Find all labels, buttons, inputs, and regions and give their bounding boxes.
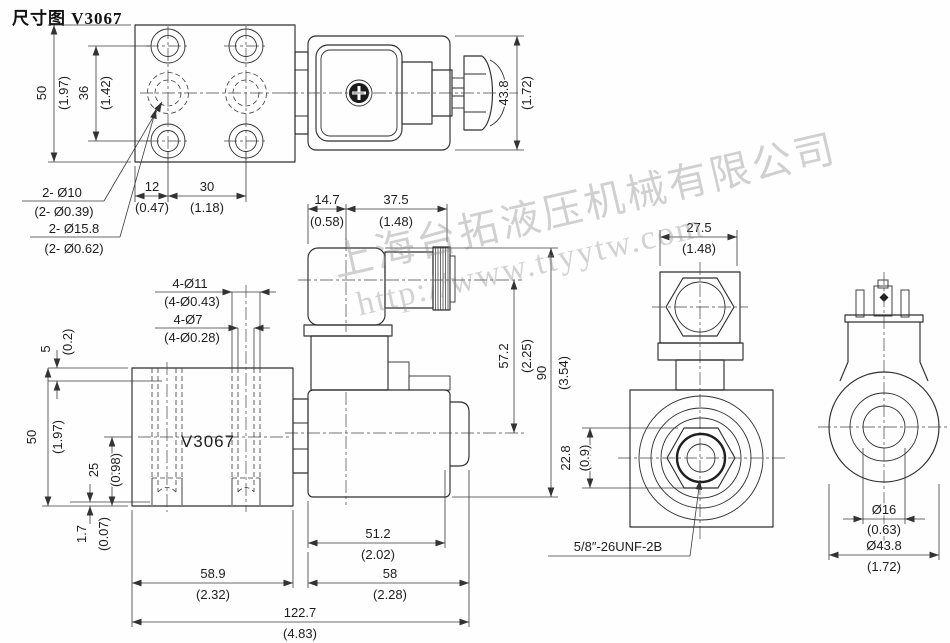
view-block: V3067 4-Ø11 (4-Ø0.43) 4-Ø7 (4-Ø0.28 <box>24 276 293 551</box>
dim-block-height-mm: 50 <box>24 430 39 444</box>
callout-holes-d7-in: (4-Ø0.28) <box>164 330 220 345</box>
dim-total-height-in: (3.54) <box>556 356 571 390</box>
block-model-label: V3067 <box>181 432 235 451</box>
dim-plate-span-in: (1.42) <box>98 76 113 110</box>
dim-plate-offset-mm: 12 <box>145 179 159 194</box>
dim-coil-width-mm: 37.5 <box>383 192 408 207</box>
view-coil-end: Ø16 (0.63) Ø43.8 (1.72) <box>818 272 950 574</box>
drawing-page: 尺寸图 V3067 <box>0 0 950 643</box>
dim-block-centerline-in: (0.98) <box>108 453 123 487</box>
dim-front-width-in: (1.48) <box>682 241 716 256</box>
dim-body-total-in: (2.28) <box>373 587 407 602</box>
view-top: 43.8 (1.72) <box>285 36 534 150</box>
dim-plate-height-mm: 50 <box>34 86 49 100</box>
callout-holes-d158-in: (2- Ø0.62) <box>44 241 103 256</box>
dim-total-height-mm: 90 <box>534 366 549 380</box>
callout-holes-d10-in: (2- Ø0.39) <box>34 204 93 219</box>
dim-hex-flats-mm: 22.8 <box>558 445 573 470</box>
dim-overall-length-mm: 122.7 <box>284 605 317 620</box>
dim-body-length-mm: 51.2 <box>365 526 390 541</box>
dim-centerline-height-in: (2.25) <box>519 339 534 373</box>
callout-holes-d158-mm: 2- Ø15.8 <box>49 221 100 236</box>
callout-holes-d11-in: (4-Ø0.43) <box>164 294 220 309</box>
dim-front-width-mm: 27.5 <box>686 220 711 235</box>
dim-coil-od-mm: Ø43.8 <box>866 538 901 553</box>
callout-thread: 5/8″-26UNF-2B <box>574 539 662 554</box>
dim-block-height-in: (1.97) <box>50 420 65 454</box>
view-plate-face: 50 (1.97) 36 (1.42) 12 (0.47) 30 (1.18) … <box>22 25 295 256</box>
dim-block-centerline-mm: 25 <box>86 463 101 477</box>
dim-block-top-mm: 5 <box>38 345 53 352</box>
dim-block-width-mm: 58.9 <box>200 566 225 581</box>
dim-top-height-mm: 43.8 <box>496 80 511 105</box>
callout-holes-d11-mm: 4-Ø11 <box>172 276 207 291</box>
callout-holes-d10-mm: 2- Ø10 <box>42 185 82 200</box>
dim-coil-bore-mm: Ø16 <box>872 502 897 517</box>
dim-block-lip-in: (0.07) <box>96 517 111 551</box>
dim-block-lip-mm: 1.7 <box>74 525 89 543</box>
dim-top-height-in: (1.72) <box>519 76 534 110</box>
dim-body-total-mm: 58 <box>383 566 397 581</box>
dim-plate-height-in: (1.97) <box>56 76 71 110</box>
dim-coil-bore-in: (0.63) <box>867 522 901 537</box>
dim-plate-span-mm: 36 <box>76 86 91 100</box>
dim-connector-offset-in: (0.58) <box>310 214 344 229</box>
dim-centerline-height-mm: 57.2 <box>496 343 511 368</box>
dim-block-top-in: (0.2) <box>60 329 75 356</box>
dim-coil-width-in: (1.48) <box>379 214 413 229</box>
dim-plate-pitch-mm: 30 <box>200 179 214 194</box>
dim-hex-flats-in: (0.9) <box>577 445 592 472</box>
bottom-dimensions: 51.2 (2.02) 58 (2.28) 58.9 (2.32) 122.7 … <box>132 470 469 641</box>
view-front: 27.5 (1.48) 5/8″-26UNF-2B <box>548 220 786 556</box>
dim-connector-offset-mm: 14.7 <box>314 192 339 207</box>
dim-block-width-in: (2.32) <box>196 587 230 602</box>
dimension-drawing-canvas: 50 (1.97) 36 (1.42) 12 (0.47) 30 (1.18) … <box>0 0 950 643</box>
dim-body-length-in: (2.02) <box>361 547 395 562</box>
dim-plate-offset-in: (0.47) <box>135 200 169 215</box>
dim-plate-pitch-in: (1.18) <box>190 200 224 215</box>
callout-holes-d7-mm: 4-Ø7 <box>174 312 203 327</box>
dim-overall-length-in: (4.83) <box>283 626 317 641</box>
dim-coil-od-in: (1.72) <box>867 559 901 574</box>
